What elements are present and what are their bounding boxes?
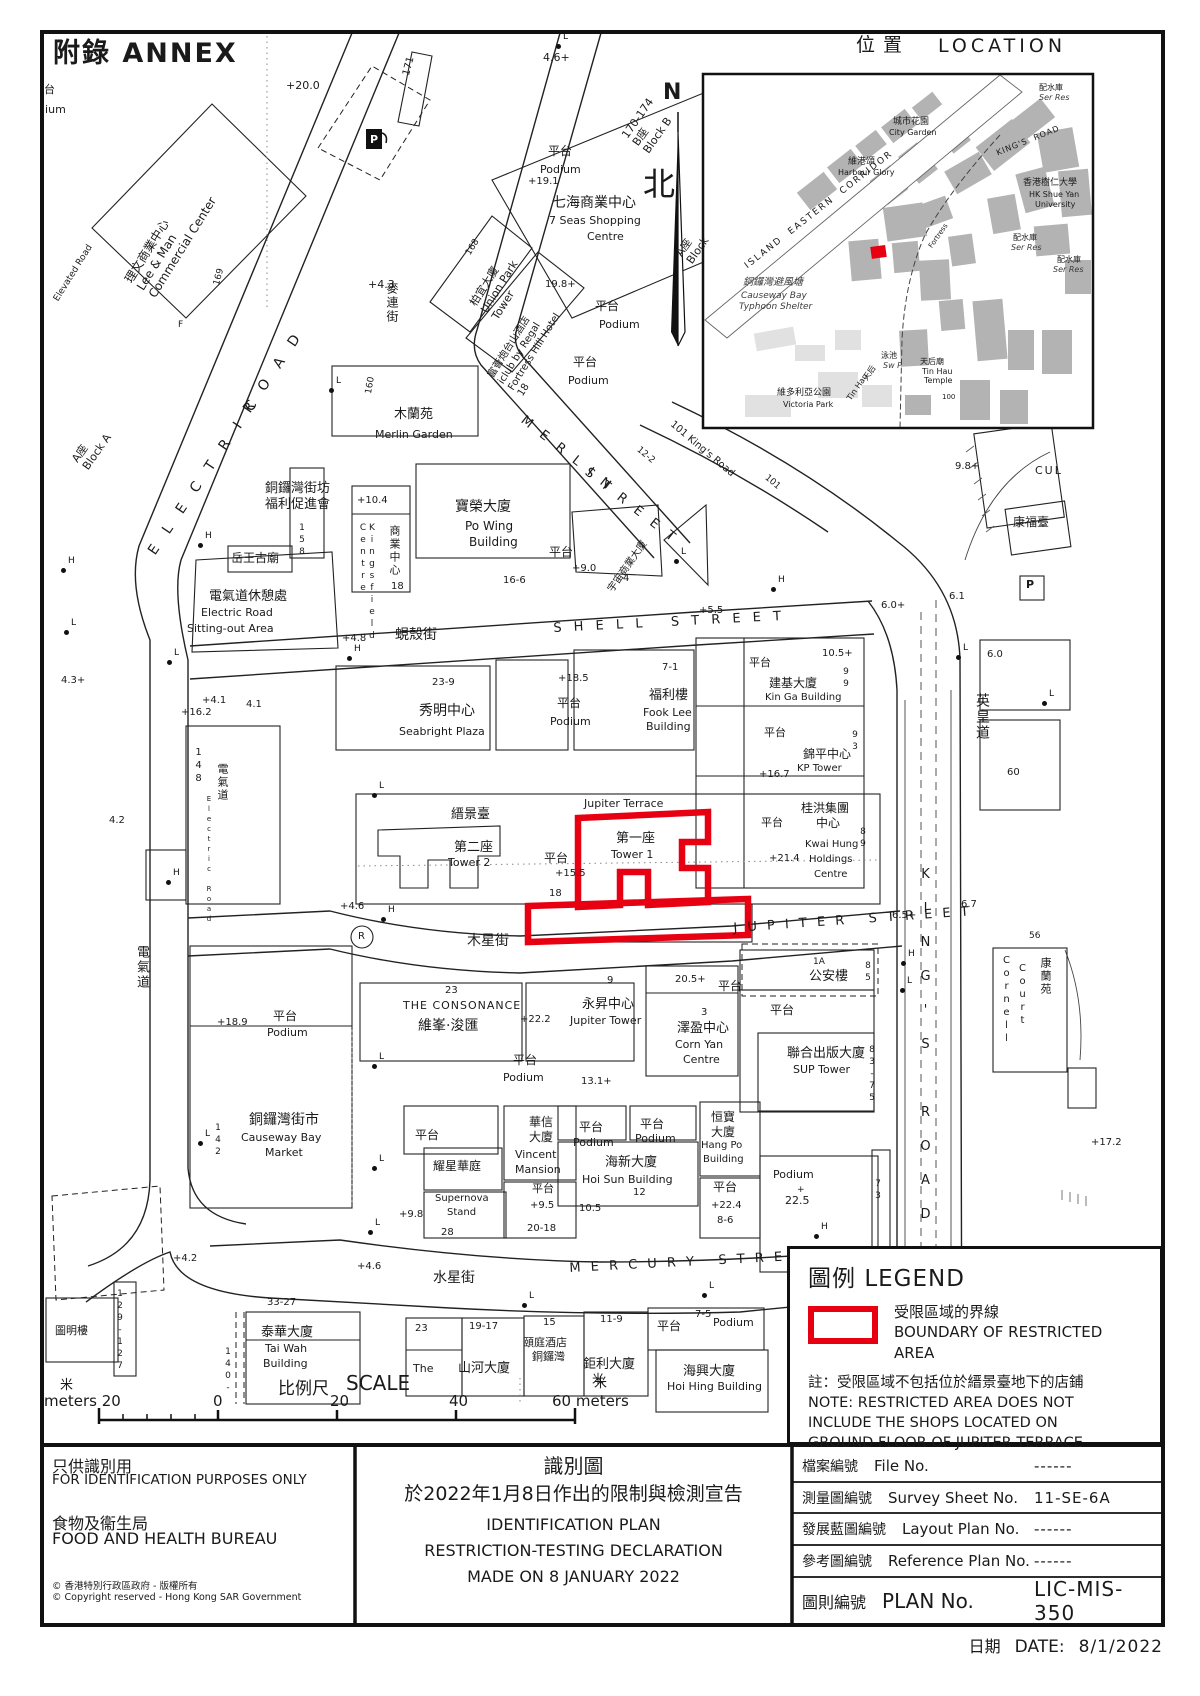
map-label: 平台	[657, 1319, 681, 1333]
footer-copyright-zh: © 香港特別行政區政府 - 版權所有	[52, 1578, 198, 1592]
map-label: 4.1	[246, 699, 262, 711]
map-label: 7 Seas Shopping	[549, 215, 641, 228]
map-label: 福利樓	[649, 688, 688, 703]
map-label: Centre	[587, 231, 624, 244]
map-label: 寶榮大廈	[455, 499, 511, 516]
location-title-zh: 位置	[856, 34, 910, 56]
map-label: 6.0	[987, 649, 1003, 661]
map-label: 木蘭苑	[394, 407, 433, 422]
map-label: 第一座	[616, 831, 655, 846]
map-label: Podium	[503, 1072, 544, 1085]
map-label: Court	[1017, 963, 1027, 1028]
scale-0: 0	[213, 1392, 223, 1410]
map-label: 6.5+	[892, 910, 916, 922]
map-label: P	[370, 134, 378, 147]
map-label: 4.3+	[61, 675, 85, 687]
legend-item-zh: 受限區域的界線	[894, 1302, 1144, 1322]
map-label: 電氣道休憩處	[209, 589, 287, 604]
map-label: 11-9	[600, 1314, 623, 1326]
map-label: +9.8	[399, 1209, 423, 1221]
map-label: +15.5	[555, 868, 586, 880]
annex-title: 附錄 ANNEX	[53, 38, 238, 70]
map-label: 大廈	[711, 1125, 735, 1139]
map-label: 公安樓	[809, 969, 848, 984]
map-label: Podium	[713, 1317, 754, 1330]
map-label: Typhoon Shelter	[739, 302, 812, 313]
map-label: Sitting-out Area	[187, 623, 274, 636]
map-label: Building	[703, 1154, 744, 1166]
map-label: 13.1+	[581, 1076, 612, 1088]
map-label: Podium	[599, 319, 640, 332]
map-label: +4.6	[357, 1261, 381, 1273]
map-label: 麥連街	[386, 282, 398, 324]
map-label: 北	[643, 166, 675, 204]
map-label: 維峯·浚匯	[418, 1018, 478, 1035]
map-label: The	[413, 1363, 433, 1376]
map-label: Po Wing	[465, 519, 513, 533]
map-label: 平台	[548, 144, 572, 158]
map-label: 電氣道	[217, 763, 228, 802]
map-label: Merlin Garden	[375, 429, 453, 442]
location-title-en: LOCATION	[938, 35, 1066, 57]
map-label: +10.4	[357, 495, 388, 507]
map-label: 縉景臺	[451, 807, 490, 822]
scale-m-left: 米	[60, 1374, 73, 1393]
map-label: 頤庭酒店	[523, 1337, 567, 1350]
map-label: Building	[469, 535, 518, 549]
map-label: 15	[543, 1317, 556, 1329]
map-label: +19.1	[528, 176, 559, 188]
map-label: Podium	[568, 375, 609, 388]
map-label: Podium	[635, 1133, 676, 1146]
map-label: 泳池	[881, 351, 897, 360]
map-label: 148	[193, 747, 203, 786]
map-label: Podium	[773, 1169, 814, 1182]
map-label: Supernova	[435, 1193, 489, 1205]
map-label: 93	[850, 730, 859, 754]
map-label: 海新大廈	[605, 1155, 657, 1170]
footer-bureau-en: FOOD AND HEALTH BUREAU	[52, 1529, 277, 1548]
map-label: Victoria Park	[783, 400, 833, 409]
map-label: 18	[549, 888, 562, 900]
map-label: Kin Ga Building	[765, 692, 841, 704]
map-label: 19-17	[469, 1321, 498, 1333]
map-label: Fook Lee	[643, 707, 692, 720]
map-label: 商業中心	[389, 525, 400, 577]
map-label: 福利促進會	[265, 497, 330, 512]
map-label: 18	[391, 581, 404, 593]
map-label: Causeway Bay	[741, 291, 807, 302]
scale-60: 60 meters	[552, 1392, 629, 1410]
map-label: 23	[415, 1323, 428, 1335]
map-label: Vincent	[515, 1149, 556, 1162]
map-label: 配水庫	[1057, 255, 1081, 264]
table-row-reference-plan: 參考圖編號 Reference Plan No. ------	[792, 1545, 1163, 1577]
map-label: +9.0	[572, 563, 596, 575]
map-label: 19.8+	[545, 279, 576, 291]
plan-subtitle-en: RESTRICTION-TESTING DECLARATION	[355, 1541, 792, 1560]
map-label: 平台	[557, 696, 581, 710]
map-label: +20.0	[286, 80, 320, 93]
map-label: Ser Res	[1011, 243, 1041, 252]
map-label: +4.1	[202, 695, 226, 707]
legend-item-en: BOUNDARY OF RESTRICTED AREA	[894, 1322, 1144, 1363]
map-label: 平台	[718, 979, 742, 993]
map-label: 142	[213, 1123, 222, 1159]
map-label: 10.5	[579, 1203, 601, 1215]
map-label: Corn Yan	[675, 1039, 723, 1052]
map-label: +16.7	[759, 769, 790, 781]
map-label: Podium	[573, 1137, 614, 1150]
map-label: Kingsfield Centre	[358, 523, 376, 643]
map-label: Electric Road	[205, 795, 212, 925]
map-label: Cornell	[1001, 955, 1011, 1046]
map-label: Building	[263, 1358, 308, 1371]
map-label: 89	[858, 827, 867, 851]
map-label: 56	[1029, 931, 1040, 942]
inset-site-marker	[870, 245, 887, 259]
scale-label-en: SCALE	[346, 1371, 410, 1395]
map-label: Hoi Hing Building	[667, 1381, 762, 1394]
scale-bar	[99, 1408, 575, 1424]
table-row-survey-sheet: 測量圖編號 Survey Sheet No. 11-SE-6A	[792, 1482, 1163, 1513]
map-label: 6.0+	[881, 600, 905, 612]
map-label: 平台	[532, 1183, 554, 1196]
map-label: Causeway Bay	[241, 1132, 321, 1145]
map-label: Holdings	[809, 854, 852, 866]
plan-title-en: IDENTIFICATION PLAN	[355, 1515, 792, 1534]
map-label: 4	[623, 573, 629, 585]
map-label: 6.7	[961, 899, 977, 911]
map-label: 60	[1007, 767, 1020, 779]
plan-date-line-en: MADE ON 8 JANUARY 2022	[355, 1567, 792, 1586]
map-label: 木星街	[467, 933, 509, 950]
table-row-file-no: 檔案編號 File No. ------	[792, 1449, 1163, 1482]
map-label: 4.6+	[543, 52, 570, 65]
map-label: 岳王古廟	[231, 551, 279, 565]
map-label: Kwai Hung	[805, 839, 858, 851]
map-label: 平台	[770, 1003, 794, 1017]
map-label: 配水庫	[1013, 233, 1037, 242]
map-label: 73	[873, 1179, 882, 1203]
map-label: 4.2	[109, 815, 125, 827]
map-label: 83-75	[867, 1045, 876, 1105]
map-label: 銅鑼灣	[532, 1351, 565, 1364]
map-label: 台	[44, 84, 55, 97]
map-label: 7-5	[695, 1309, 711, 1321]
map-label: Temple	[924, 376, 952, 385]
map-label: Mansion	[515, 1164, 561, 1177]
map-label: 23-9	[432, 677, 455, 689]
map-label: 33-27	[267, 1297, 296, 1309]
map-label: +22.2	[520, 1014, 551, 1026]
map-label: University	[1035, 200, 1075, 209]
map-label: R	[358, 931, 365, 943]
map-label: 平台	[749, 657, 771, 670]
legend-note: 註：受限區域不包括位於縉景臺地下的店鋪 NOTE: RESTRICTED ARE…	[808, 1373, 1144, 1453]
map-label: 康福臺	[1013, 515, 1049, 529]
map-label: Tower 1	[611, 849, 653, 862]
map-label: Ser Res	[1039, 93, 1069, 102]
map-label: 平台	[595, 299, 619, 313]
map-label: 第二座	[454, 840, 493, 855]
map-label: 中心	[816, 816, 840, 830]
map-label: N	[663, 80, 681, 106]
map-label: 平台	[513, 1053, 537, 1067]
map-label: 維多利亞公園	[777, 388, 831, 399]
map-label: Podium	[267, 1027, 308, 1040]
map-label: +16.2	[181, 707, 212, 719]
footer-purpose-en: FOR IDENTIFICATION PURPOSES ONLY	[52, 1472, 307, 1488]
map-label: +17.2	[1091, 1137, 1122, 1149]
map-label: lium	[42, 104, 66, 117]
map-label: 海興大廈	[683, 1364, 735, 1379]
scale-m-right: 米	[594, 1372, 607, 1391]
map-label: 平台	[713, 1180, 737, 1194]
map-label: Market	[265, 1147, 303, 1160]
map-label: Tai Wah	[265, 1343, 307, 1356]
map-label: 錦平中心	[803, 747, 851, 761]
scale-label-zh: 比例尺	[278, 1374, 329, 1399]
map-label: 香港樹仁大學	[1023, 178, 1077, 189]
restricted-boundary-swatch	[808, 1306, 878, 1344]
map-label: 平台	[544, 851, 568, 865]
map-label: Jupiter Tower	[570, 1015, 641, 1028]
map-label: 9.8+	[955, 461, 979, 473]
map-label: 158	[297, 523, 306, 559]
map-label: 平台	[573, 355, 597, 369]
map-label: 華信	[529, 1115, 553, 1129]
map-label: 建基大廈	[769, 676, 817, 690]
map-label: +22.4	[711, 1200, 742, 1212]
map-label: 16-6	[503, 575, 526, 587]
map-label: 23	[445, 985, 458, 997]
map-label: Ser Res	[1053, 265, 1083, 274]
map-label: K I N G ' S R O A D	[919, 867, 932, 1224]
map-label: 平台	[764, 727, 786, 740]
map-label: 85	[863, 961, 872, 985]
map-label: 鉅利大廈	[583, 1357, 635, 1372]
map-label: KP Tower	[797, 763, 842, 775]
map-label: City Garden	[889, 128, 937, 137]
map-label: HK Shue Yan	[1029, 190, 1079, 199]
map-label: 銅鑼灣街坊	[265, 481, 330, 496]
map-label: 129-127	[115, 1289, 124, 1373]
map-label: THE CONSONANCE	[403, 1000, 521, 1013]
map-label: 桂洪集團	[801, 801, 849, 815]
map-label: 20-18	[527, 1223, 556, 1235]
map-label: Tower 2	[448, 857, 490, 870]
map-label: 泰華大廈	[261, 1325, 313, 1340]
map-label: Podium	[550, 716, 591, 729]
map-label: 平台	[549, 545, 573, 559]
map-label: P	[1026, 579, 1034, 592]
map-label: 電氣道	[135, 945, 148, 990]
map-label: CUL	[1035, 465, 1063, 478]
map-label: Jupiter Terrace	[584, 798, 663, 811]
map-label: 配水庫	[1039, 83, 1063, 92]
scale-40: 40	[449, 1392, 468, 1410]
map-label: +5.5	[699, 605, 723, 617]
map-label: F	[178, 320, 183, 331]
map-label: Hang Po	[701, 1140, 742, 1152]
map-label: 12	[633, 1187, 646, 1199]
map-label: Building	[646, 721, 691, 734]
table-row-plan-no: 圖則編號 PLAN No. LIC-MIS-350	[792, 1577, 1163, 1625]
map-label: 22.5	[785, 1195, 810, 1208]
map-label: +9.5	[530, 1200, 554, 1212]
map-label: Hoi Sun Building	[582, 1174, 673, 1187]
map-label: +4.6	[340, 901, 364, 913]
map-label: 維港頌	[848, 157, 875, 168]
map-label: 蜆殼街	[395, 627, 437, 644]
map-label: 28	[441, 1227, 454, 1239]
map-label: 聯合出版大廈	[787, 1046, 865, 1061]
map-label: 平台	[579, 1120, 603, 1134]
map-label: 恒寶	[711, 1110, 735, 1124]
plan-subtitle-zh: 於2022年1月8日作出的限制與檢測宣告	[355, 1479, 792, 1506]
map-label: 99	[841, 667, 850, 691]
map-label: 1A	[813, 957, 825, 968]
map-label: 平台	[640, 1117, 664, 1131]
map-label: 平台	[273, 1009, 297, 1023]
map-label: 8-6	[717, 1215, 733, 1227]
legend-box: 圖例 LEGEND 受限區域的界線 BOUNDARY OF RESTRICTED…	[787, 1246, 1163, 1445]
map-label: 平台	[415, 1128, 439, 1142]
map-label: Sw P	[883, 361, 902, 370]
map-label: Harbour Glory	[838, 168, 894, 177]
map-label: 城市花園	[893, 117, 929, 128]
map-label: 平台	[761, 817, 783, 830]
north-arrow-icon	[671, 112, 685, 346]
map-label: +18.5	[558, 673, 589, 685]
map-label: Centre	[683, 1054, 720, 1067]
map-label: 銅鑼灣避風塘	[743, 277, 803, 289]
map-label: 山河大廈	[458, 1361, 510, 1376]
map-label: 6.1	[949, 591, 965, 603]
map-label: 圖明樓	[55, 1325, 88, 1338]
map-label: +21.4	[769, 853, 800, 865]
map-label: 7-1	[662, 662, 678, 674]
map-label: Seabright Plaza	[399, 726, 485, 739]
map-label: 20.5+	[675, 974, 706, 986]
identification-plan-page: 台lium+20.0+4.34.6+理文商業中心 Lee & Man Comme…	[0, 0, 1200, 1696]
map-label: 水星街	[433, 1270, 475, 1287]
map-label: 秀明中心	[419, 703, 475, 720]
map-label: +4.2	[173, 1253, 197, 1265]
map-label: 康蘭苑	[1040, 957, 1051, 996]
map-label: Electric Road	[201, 607, 273, 620]
map-label: 銅鑼灣街市	[249, 1112, 319, 1129]
map-label: Centre	[814, 869, 847, 881]
map-label: 100	[942, 393, 955, 401]
map-label: 9	[607, 975, 613, 987]
map-label: 永昇中心	[582, 997, 634, 1012]
map-label: SUP Tower	[793, 1064, 850, 1077]
date-line: 日期 DATE: 8/1/2022	[969, 1633, 1163, 1657]
map-label: 3	[701, 1007, 707, 1019]
map-label: Stand	[447, 1207, 476, 1219]
legend-title: 圖例 LEGEND	[808, 1259, 1144, 1293]
map-label: 天后廟	[920, 357, 944, 366]
scale-left-label: meters 20	[44, 1392, 121, 1410]
footer-copyright-en: © Copyright reserved - Hong Kong SAR Gov…	[52, 1592, 301, 1603]
map-label: 英皇道	[975, 693, 989, 741]
map-label: 耀星華庭	[433, 1159, 481, 1173]
map-label: 澤盈中心	[677, 1021, 729, 1036]
map-label: 大廈	[529, 1130, 553, 1144]
scale-20: 20	[330, 1392, 349, 1410]
map-label: 140-	[223, 1347, 232, 1395]
map-label: 10.5+	[822, 648, 853, 660]
plan-title-zh: 識別圖	[355, 1450, 792, 1479]
table-row-layout-plan: 發展藍圖編號 Layout Plan No. ------	[792, 1513, 1163, 1545]
map-label: 七海商業中心	[552, 195, 636, 212]
map-label: +18.9	[217, 1017, 248, 1029]
